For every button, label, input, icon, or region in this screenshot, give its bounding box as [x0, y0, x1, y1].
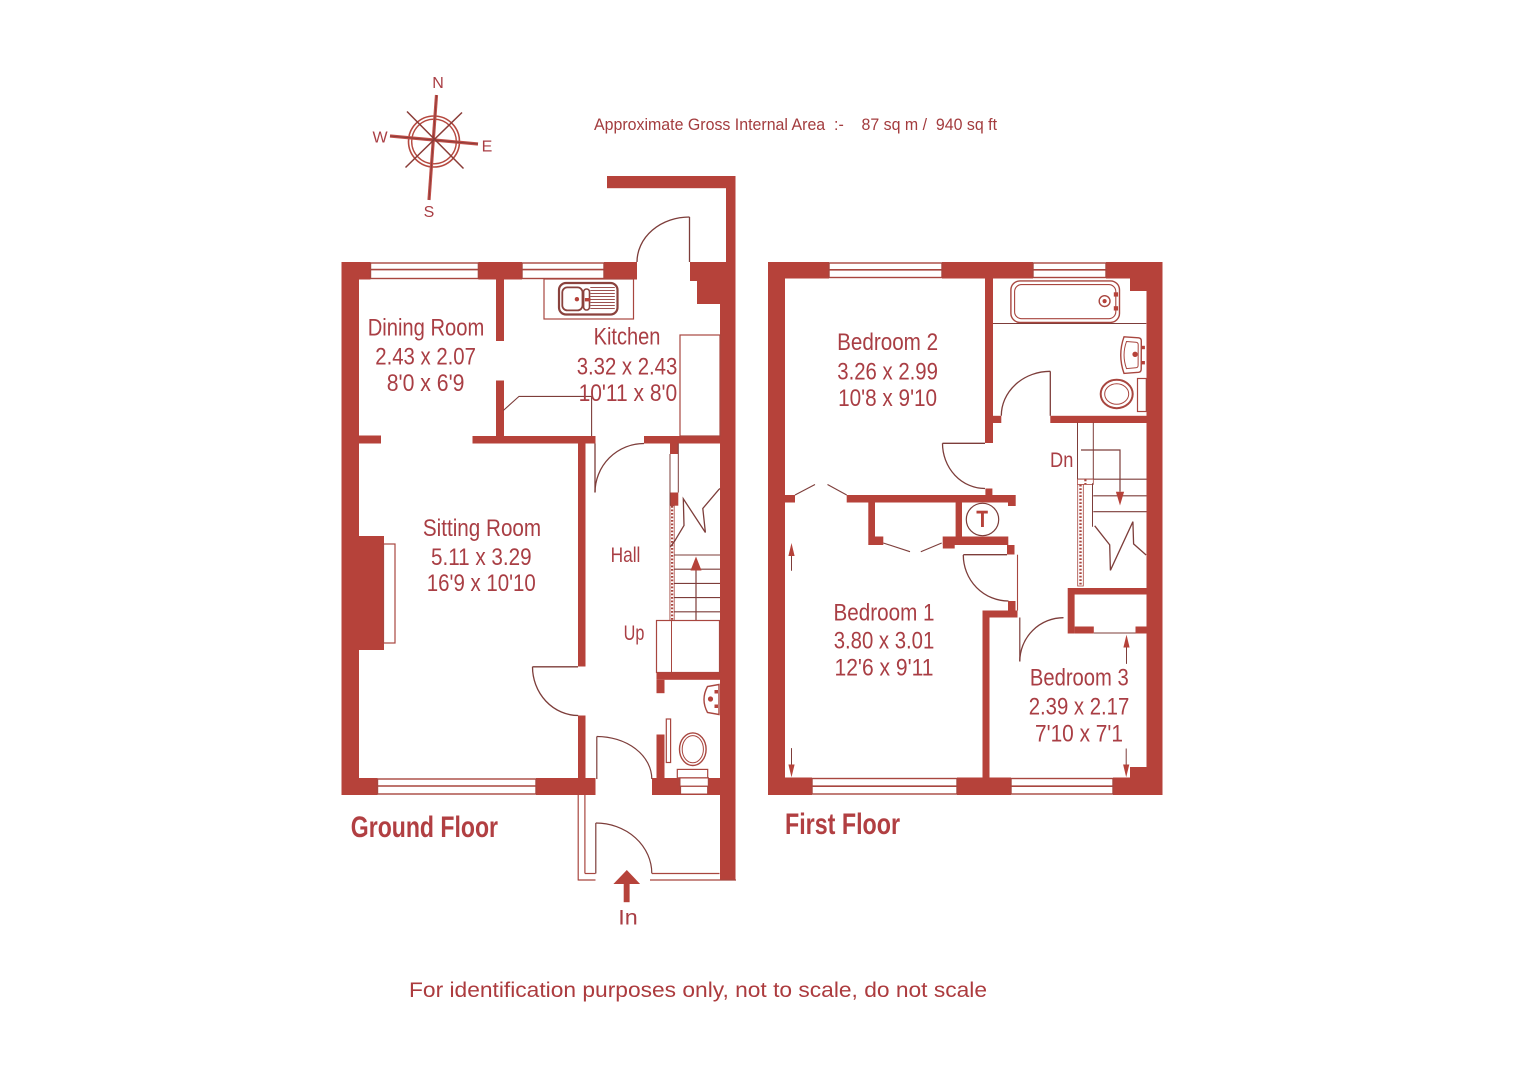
svg-text:Dining Room: Dining Room	[368, 315, 485, 342]
svg-text:Approximate Gross Internal Are: Approximate Gross Internal Area :- 87 sq…	[594, 115, 997, 134]
svg-text:2.39 x 2.17: 2.39 x 2.17	[1029, 694, 1130, 721]
svg-text:Bedroom 3: Bedroom 3	[1030, 665, 1129, 692]
svg-text:3.80 x 3.01: 3.80 x 3.01	[834, 628, 935, 655]
svg-text:8'0 x 6'9: 8'0 x 6'9	[387, 370, 465, 397]
svg-text:Hall: Hall	[611, 543, 641, 567]
svg-text:For identification purposes on: For identification purposes only, not to…	[409, 978, 987, 1002]
svg-text:Dn: Dn	[1050, 448, 1073, 472]
svg-text:W: W	[372, 130, 388, 147]
svg-text:Bedroom 1: Bedroom 1	[834, 600, 935, 627]
svg-text:S: S	[424, 204, 435, 221]
svg-text:3.26 x 2.99: 3.26 x 2.99	[837, 358, 938, 385]
svg-text:Ground Floor: Ground Floor	[351, 811, 498, 844]
svg-text:N: N	[432, 75, 444, 92]
svg-text:E: E	[482, 139, 493, 156]
svg-text:In: In	[618, 906, 638, 930]
svg-text:Up: Up	[624, 621, 645, 645]
svg-text:Sitting Room: Sitting Room	[423, 515, 541, 542]
svg-text:2.43 x 2.07: 2.43 x 2.07	[375, 343, 476, 370]
svg-text:10'8 x 9'10: 10'8 x 9'10	[838, 385, 937, 412]
svg-text:First Floor: First Floor	[785, 808, 900, 841]
svg-text:10'11 x 8'0: 10'11 x 8'0	[579, 380, 678, 407]
svg-text:16'9 x 10'10: 16'9 x 10'10	[427, 570, 536, 597]
svg-text:Kitchen: Kitchen	[594, 324, 661, 351]
svg-text:5.11 x 3.29: 5.11 x 3.29	[431, 544, 532, 571]
svg-text:Bedroom 2: Bedroom 2	[837, 329, 938, 356]
svg-text:7'10 x 7'1: 7'10 x 7'1	[1035, 721, 1123, 748]
svg-text:12'6 x 9'11: 12'6 x 9'11	[835, 655, 934, 682]
svg-text:3.32 x 2.43: 3.32 x 2.43	[577, 353, 678, 380]
